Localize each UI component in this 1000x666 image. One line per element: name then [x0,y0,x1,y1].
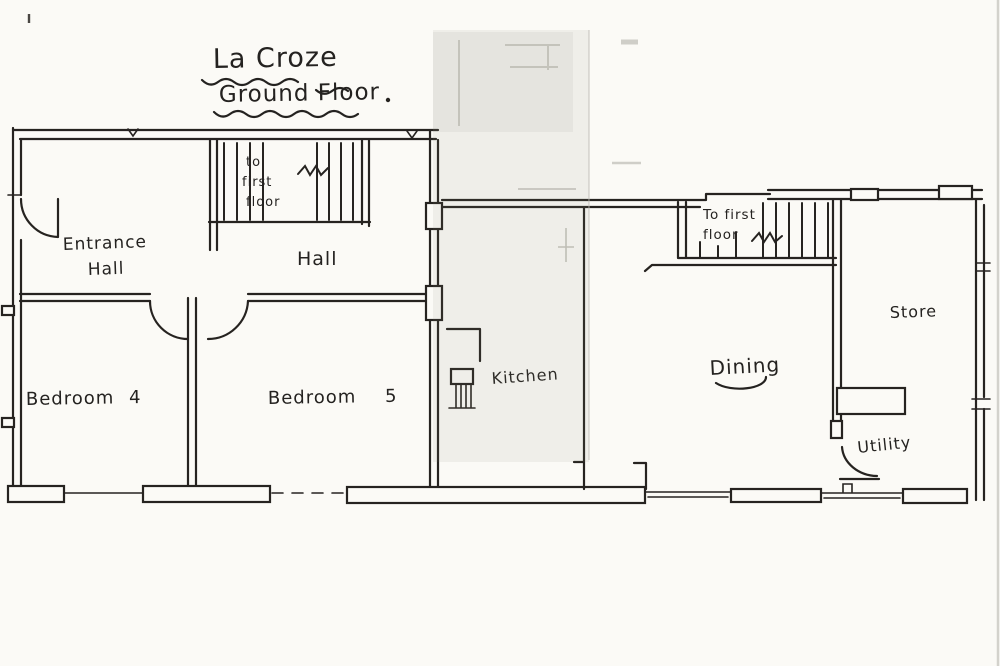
staircase-left-label-1: to [246,155,261,170]
room-label-hall: Hall [297,248,338,270]
staircase-right: To first floor [678,202,836,258]
room-label-entrance-hall-2: Hall [87,259,124,280]
staircase-left: to first floor [209,140,370,250]
window-mark-left-2 [2,418,14,427]
right-wing-walls [645,186,990,503]
room-label-bedroom5: Bedroom 5 [268,386,398,409]
store-utility-wall [837,388,905,414]
floor-plan-drawing: La Croze Ground Floor to [0,0,1000,666]
bedroom5-door [208,301,248,339]
page-title-line2: Ground Floor [219,79,381,108]
entrance-door [21,199,58,237]
staircase-left-label-3: floor [246,195,280,210]
window-mark-left-1 [2,306,14,315]
title-dot [386,98,390,102]
staircase-right-label-1: To first [702,207,756,223]
page-title-line1: La Croze [213,42,338,75]
scanned-floor-plan-page: La Croze Ground Floor to [0,0,1000,666]
staircase-left-arrow [298,166,328,175]
staircase-right-arrow [752,233,782,242]
room-label-bedroom4: Bedroom 4 [26,387,142,410]
staircase-left-label-2: first [242,175,272,190]
room-label-entrance-hall-1: Entrance [62,232,147,255]
chimney-mark-2 [939,186,972,199]
room-label-utility: Utility [856,432,912,457]
staircase-right-label-2: floor [703,227,739,243]
chimney-mark-1 [851,189,878,200]
room-label-dining: Dining [709,352,781,380]
room-label-store: Store [889,301,937,322]
bedroom4-door [150,301,188,339]
title-block: La Croze Ground Floor [202,42,390,117]
utility-door [831,421,879,492]
title-underline-2 [214,111,358,117]
scan-band-overlay [433,30,589,462]
